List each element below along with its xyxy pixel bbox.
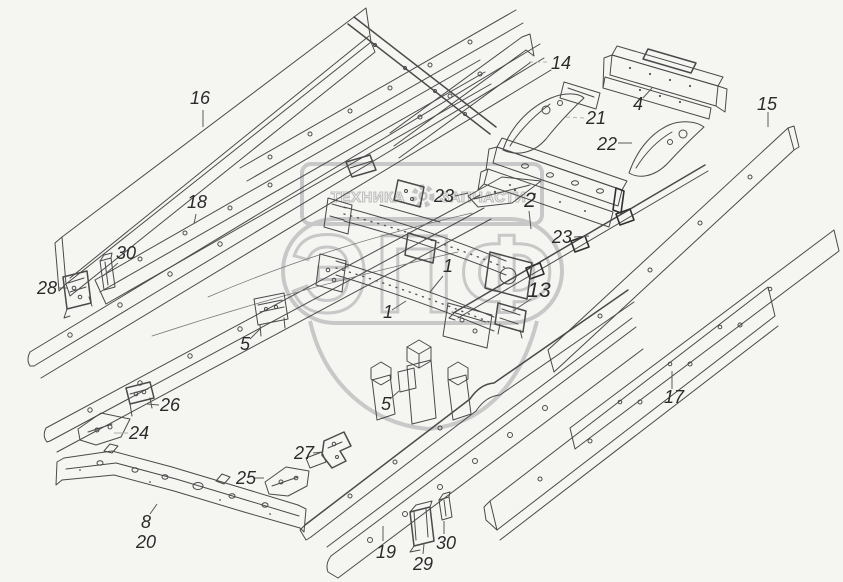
callout-label-13: 13 (527, 279, 551, 302)
callout-8: 8 (141, 504, 157, 532)
callout-15: 15 (757, 94, 778, 127)
callout-label-1-upper: 1 (443, 256, 453, 276)
chassis-frame-exploded-diagram: ТЕХНИКА ЗАПЧАСТИ ЭПФ (0, 0, 843, 582)
callout-label-30-bottom: 30 (436, 533, 456, 553)
side-rail-back (240, 10, 523, 181)
callout-label-14: 14 (551, 53, 571, 73)
callout-label-17: 17 (664, 387, 685, 407)
bracket-28 (63, 271, 92, 318)
callout-17: 17 (664, 371, 685, 407)
bracket-25 (265, 467, 309, 496)
side-rail-right-angle (570, 230, 839, 449)
callout-5-center: 5 (381, 391, 399, 414)
side-rail-19 (327, 318, 643, 578)
callout-20: 20 (135, 532, 156, 552)
callout-label-1-lower: 1 (383, 302, 393, 322)
callout-30-left: 30 (103, 243, 136, 276)
gusset-21 (503, 94, 584, 153)
callout-30-bottom: 30 (436, 521, 456, 553)
callout-label-21: 21 (585, 108, 606, 128)
callout-label-20: 20 (135, 532, 156, 552)
callout-label-16: 16 (190, 88, 211, 108)
callout-label-18: 18 (187, 192, 207, 212)
pin-30-bottom (439, 492, 452, 520)
callout-label-5-left: 5 (240, 334, 251, 354)
callout-label-23-lower: 23 (551, 227, 572, 247)
callout-label-30-left: 30 (116, 243, 136, 263)
callout-25: 25 (235, 468, 264, 488)
callout-21: 21 (566, 108, 606, 128)
front-cross-member-8-20 (56, 444, 306, 532)
callout-label-26: 26 (159, 395, 181, 415)
cross-member-4 (603, 46, 727, 119)
callout-label-15: 15 (757, 94, 778, 114)
frame-parts-drawing (28, 8, 839, 578)
gusset-22 (629, 122, 704, 176)
callout-label-23-upper: 23 (433, 186, 454, 206)
callout-label-8: 8 (141, 512, 151, 532)
callout-5-left: 5 (240, 328, 261, 354)
callout-label-25: 25 (235, 468, 257, 488)
callout-24: 24 (114, 423, 149, 443)
callout-label-28: 28 (36, 278, 57, 298)
callout-22: 22 (596, 134, 632, 154)
callout-label-24: 24 (128, 423, 149, 443)
callout-label-4: 4 (633, 94, 643, 114)
callout-29: 29 (412, 544, 433, 574)
callout-label-27: 27 (293, 443, 315, 463)
bracket-24 (78, 413, 130, 445)
callout-label-5-center: 5 (381, 394, 392, 414)
callout-label-29: 29 (412, 554, 433, 574)
callout-label-2: 2 (523, 189, 536, 212)
callout-18: 18 (187, 192, 207, 224)
rail-segment-14 (390, 34, 534, 158)
watermark-shield-curve (310, 321, 537, 429)
parts-diagram-page: ТЕХНИКА ЗАПЧАСТИ ЭПФ (0, 0, 843, 582)
callout-label-22: 22 (596, 134, 617, 154)
callout-16: 16 (190, 88, 211, 127)
callout-label-19: 19 (376, 542, 396, 562)
callout-19: 19 (376, 526, 396, 562)
